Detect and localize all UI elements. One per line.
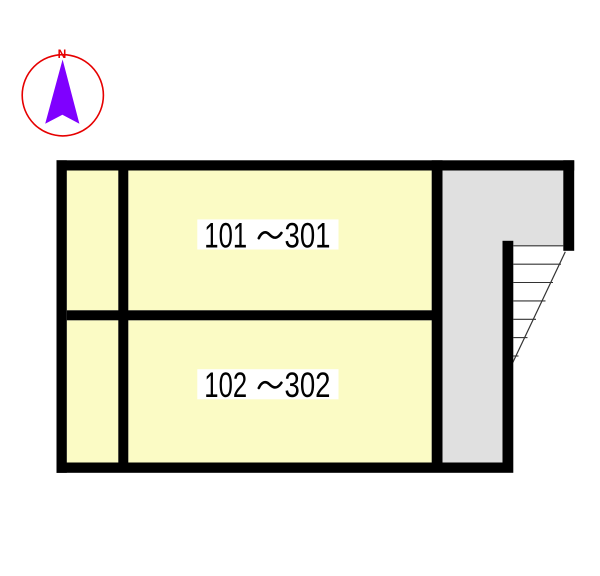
- svg-text:N: N: [58, 47, 67, 61]
- svg-text:102: 102: [204, 365, 247, 405]
- svg-text:301: 301: [285, 215, 331, 255]
- svg-text:302: 302: [285, 365, 331, 405]
- svg-text:101: 101: [204, 215, 247, 255]
